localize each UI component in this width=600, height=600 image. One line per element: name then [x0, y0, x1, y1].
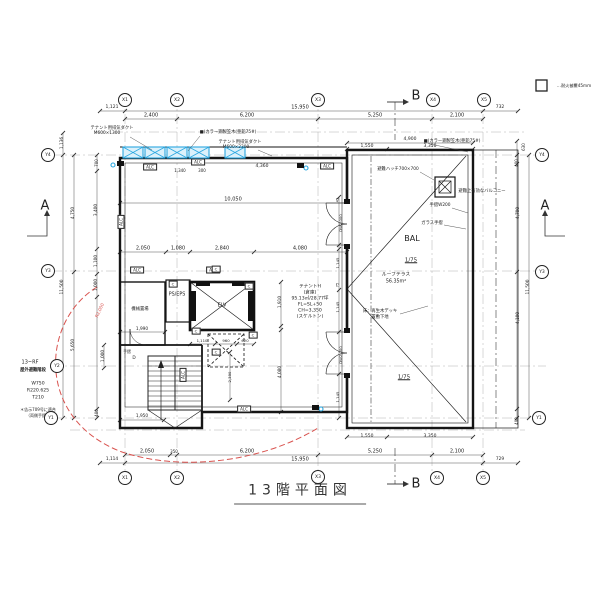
- dim-label: 15,950: [291, 458, 309, 463]
- elevator-shaft: [190, 282, 254, 367]
- dim-label: C: [249, 332, 258, 339]
- dim-label: 1,950: [136, 415, 148, 419]
- dim-label: C: [212, 266, 221, 273]
- dim-label: R220.625: [27, 390, 49, 395]
- dim-label: 4,700: [517, 207, 521, 219]
- stair-note-floors: 13~RF: [22, 361, 39, 366]
- dim-label: 1,145: [336, 258, 340, 269]
- dim-label: DW2,000: [339, 346, 343, 364]
- section-marker-a-left: A: [41, 200, 50, 213]
- dim-label: 置敷下地: [371, 316, 388, 320]
- dim-label: 手摺: [123, 350, 131, 354]
- annotation-roof-terrace: ルーフテラス: [382, 274, 410, 279]
- dim-label: 300: [198, 169, 206, 173]
- section-marker-a-right: A: [541, 200, 550, 213]
- dim-label: 75: [336, 283, 340, 287]
- room-label-balcony: BAL: [404, 235, 419, 243]
- dim-label: 6,200: [240, 450, 254, 455]
- dim-label: 2,400: [144, 114, 158, 119]
- dim-label: 4,080: [293, 247, 307, 252]
- drawing-title: 13階平面図: [234, 480, 366, 505]
- dim-label: 4,900: [404, 138, 417, 143]
- dim-label: 4,080: [279, 366, 283, 378]
- dim-label: 2,390: [228, 372, 232, 383]
- grid-bubble-y1: Y1: [44, 411, 58, 425]
- dim-label: W750: [31, 383, 44, 388]
- dim-label: FL=SL+50: [298, 304, 322, 309]
- dim-label: 1,145: [336, 302, 340, 313]
- grid-bubble-x2: X2: [170, 93, 184, 107]
- legend-fireproofing-label: …耐火被覆45mm: [557, 84, 591, 88]
- dim-label: 700: [95, 159, 99, 167]
- room-label-tenant: テナントH: [299, 286, 321, 291]
- dim-label: 620: [241, 339, 248, 343]
- storage-room-walls: [120, 282, 165, 345]
- stair-note-name: 屋外避難階段: [20, 369, 46, 373]
- dim-label: M600×2300: [223, 146, 249, 150]
- dim-label: 2,100: [450, 114, 464, 119]
- dim-label: 3,350: [424, 435, 437, 440]
- dim-label: 6,200: [240, 114, 254, 119]
- dim-label: 2,100: [450, 450, 464, 455]
- grid-bubble-x4: X4: [430, 471, 444, 485]
- dim-label: ALC: [143, 164, 157, 171]
- dim-label: C: [212, 349, 221, 356]
- dim-label: DW2,000: [339, 214, 343, 232]
- dim-label: 4,360: [256, 165, 269, 170]
- annotation-escape-hatch: 避難ハッチ700×700: [377, 168, 419, 172]
- dim-label: 630: [522, 143, 526, 151]
- grid-bubble-x2: X2: [170, 471, 184, 485]
- dim-label: 4,750: [72, 207, 76, 219]
- annotation-coping-1: ■(カラー鋼製笠木(亜鉛75#): [200, 131, 257, 135]
- room-label-ps-eps: PS/EPS: [169, 294, 186, 299]
- dim-label: 1,990: [136, 328, 148, 332]
- section-marker-b-bottom: B: [412, 478, 421, 491]
- room-label-storage: 機械置場: [131, 308, 148, 312]
- legend-fireproofing-symbol: [536, 80, 547, 91]
- dim-label: C: [192, 328, 201, 335]
- section-marker-b-top: B: [412, 90, 421, 103]
- dim-label: 1,910: [279, 296, 283, 308]
- dim-label: 3,350: [424, 145, 437, 150]
- grid-bubble-y4: Y4: [535, 148, 549, 162]
- dim-label: ALC: [180, 368, 187, 382]
- dim-label: 4,100: [517, 312, 521, 324]
- grid-bubble-y3: Y3: [535, 265, 549, 279]
- dim-label: 1,550: [361, 435, 374, 440]
- grid-bubble-x5: X5: [477, 93, 491, 107]
- dim-label: 400: [515, 159, 519, 167]
- dim-label: 1,145: [336, 392, 340, 403]
- grid-bubble-y4: Y4: [41, 148, 55, 162]
- dim-label: C: [169, 281, 178, 288]
- dim-label: 400: [515, 417, 519, 425]
- dim-label: 11,500: [527, 279, 531, 294]
- dim-label: C: [245, 283, 254, 290]
- vent-marks: [117, 161, 319, 410]
- dim-label: 960: [222, 339, 229, 343]
- annotation-handrail: 手摺W200: [429, 204, 450, 208]
- dim-label: 1,110: [197, 339, 208, 343]
- dim-label: 1,340: [174, 169, 185, 173]
- dim-label: 56.35m²: [386, 281, 406, 286]
- dim-label: 1,000: [102, 350, 106, 362]
- dim-label: 45: [336, 198, 340, 202]
- dim-label: T210: [32, 397, 44, 402]
- dim-label: D: [132, 357, 135, 361]
- exhaust-louvers: [111, 147, 323, 411]
- annotation-balcony-note: 避難上有効なバルコニー: [458, 190, 505, 194]
- grid-bubble-y3: Y3: [41, 264, 55, 278]
- dim-label: 1,080: [171, 247, 185, 252]
- annotation-glass-rail: ガラス手摺: [421, 222, 442, 226]
- dim-label: 2,050: [136, 247, 150, 252]
- grid-bubble-x3: X3: [311, 93, 325, 107]
- room-label-elevator: ELV: [218, 304, 227, 309]
- dim-label: ALC: [118, 215, 125, 229]
- dim-label: 5,250: [368, 450, 382, 455]
- balcony-doors: [326, 203, 347, 374]
- dim-label: ALC: [130, 267, 144, 274]
- dim-label: 1,121: [106, 106, 119, 111]
- dim-label: (倉庫): [304, 292, 317, 297]
- dim-label: 400: [95, 409, 99, 417]
- dim-label: 95.13㎡/28.77坪: [291, 298, 328, 303]
- grid-bubble-x5: X5: [476, 471, 490, 485]
- dim-label: 1,550: [361, 145, 374, 150]
- dim-label: ALC: [191, 159, 205, 166]
- grid-bubble-y1: Y1: [532, 411, 546, 425]
- dim-label: 1,114: [106, 458, 118, 462]
- dim-label: 2,050: [140, 450, 154, 455]
- grid-bubble-y2: Y2: [50, 359, 64, 373]
- dim-label: 5,650: [72, 339, 76, 351]
- slope-label: 1/75: [405, 258, 417, 264]
- dim-label: 1,100: [95, 255, 99, 267]
- dim-label: 2,840: [215, 247, 229, 252]
- floor-plan-sheet: 1,12115,9507322,4006,2005,2502,1004,9001…: [0, 0, 600, 600]
- dim-label: 729: [496, 458, 504, 462]
- dim-label: 350: [170, 450, 178, 454]
- dim-label: 10,050: [224, 198, 242, 203]
- dim-label: CH=3,350: [298, 310, 322, 315]
- dim-label: 1,136: [61, 137, 65, 149]
- dim-label: 3,400: [95, 204, 99, 216]
- dim-label: ALC: [237, 406, 251, 413]
- slope-label: 1/75: [398, 375, 410, 381]
- dim-label: ALC: [320, 163, 334, 170]
- grid-bubble-x1: X1: [118, 93, 132, 107]
- annotation-coping-2: ■(カラー鋼製笠木(亜鉛75#): [424, 140, 481, 144]
- dim-label: 15,950: [291, 106, 309, 111]
- dim-label: 1,000: [95, 279, 99, 291]
- dim-label: 5,250: [368, 114, 382, 119]
- dim-label: 732: [496, 106, 505, 111]
- dim-label: M600×1300: [94, 132, 120, 136]
- dim-label: 11,500: [61, 279, 65, 294]
- grid-bubble-x4: X4: [426, 93, 440, 107]
- dim-label: (スケルトン): [297, 316, 324, 321]
- annotation-deck: 床：再生木デッキ: [363, 310, 397, 314]
- grid-bubble-x1: X1: [118, 471, 132, 485]
